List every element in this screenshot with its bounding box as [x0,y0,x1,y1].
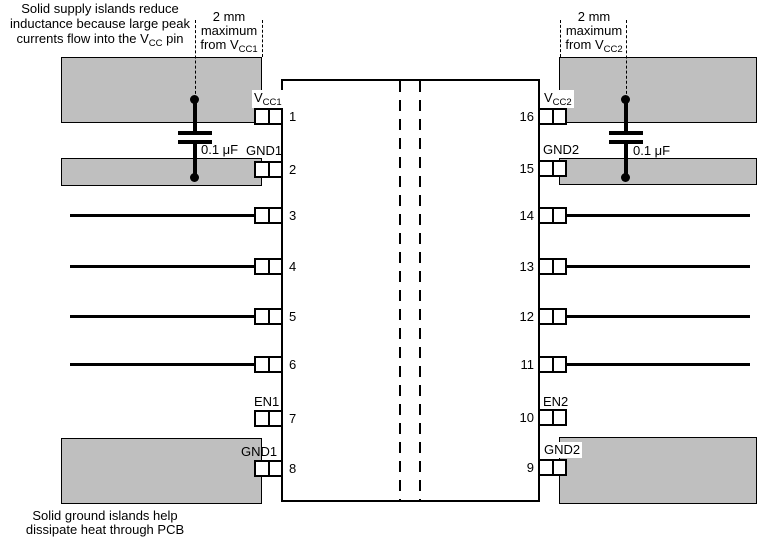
capacitor-value-left: 0.1 μF [201,142,238,157]
pad-divider [552,209,554,222]
supply-note-line2: inductance because large peak [0,16,200,31]
distance-left-line2: maximum [194,24,264,38]
pin-number-6: 6 [289,358,296,371]
pin-number-12: 12 [512,310,534,323]
pin-label-vcc2-main: V [544,90,553,105]
pin-number-1: 1 [289,110,296,123]
pin-pad-11 [538,356,567,373]
pin-pad-14 [538,207,567,224]
supply-island-note: Solid supply islands reduce inductance b… [0,1,200,48]
ground-strip-right [559,158,757,185]
supply-island-right [559,57,757,123]
trace-pin-13 [563,265,750,268]
distance-note-right: 2 mm maximum from VCC2 [559,10,629,54]
pad-divider [552,162,554,175]
pin-label-en2: EN2 [543,394,568,410]
pad-divider [268,260,270,273]
pad-divider [268,358,270,371]
distance-left-line3-sub: CC1 [239,44,258,55]
pin-pad-10 [538,409,567,426]
pin-number-5: 5 [289,310,296,323]
pad-divider [552,110,554,123]
pin-pad-13 [538,258,567,275]
trace-pin-4 [70,265,258,268]
ground-note-line1: Solid ground islands help [10,509,200,523]
pad-divider [268,412,270,425]
pin-pad-16 [538,108,567,125]
pad-divider [552,411,554,424]
ground-island-note: Solid ground islands help dissipate heat… [10,509,200,537]
pin-pad-5 [254,308,283,325]
pin-pad-4 [254,258,283,275]
pad-divider [552,310,554,323]
pin-pad-6 [254,356,283,373]
pin-number-11: 11 [512,358,534,371]
pin-pad-15 [538,160,567,177]
via-dot-bottom-right [621,173,630,182]
pin-label-vcc2-sub: CC2 [553,97,572,108]
isolation-barrier-line-right [419,81,421,501]
trace-pin-6 [70,363,258,366]
ground-strip-left [61,158,262,186]
supply-note-line3-pre: currents flow into the V [17,31,149,46]
pin-number-7: 7 [289,412,296,425]
ground-island-left [61,438,262,504]
supply-island-left [61,57,262,123]
pin-number-14: 14 [512,209,534,222]
pin-number-8: 8 [289,462,296,475]
pin-number-4: 4 [289,260,296,273]
distance-right-line1: 2 mm [559,10,629,24]
via-dot-bottom-left [190,173,199,182]
pin-label-gnd1-top: GND1 [246,143,282,159]
pad-divider [268,163,270,176]
trace-pin-5 [70,315,258,318]
distance-right-line2: maximum [559,24,629,38]
distance-left-line3: from VCC1 [194,38,264,54]
pin-label-gnd2-bottom: GND2 [542,442,582,458]
cap-plate-top-left [178,131,212,135]
pad-divider [268,310,270,323]
pin-number-16: 16 [512,110,534,123]
pin-pad-8 [254,460,283,477]
cap-plate-top-right [609,131,643,135]
pin-number-3: 3 [289,209,296,222]
supply-note-line3: currents flow into the VCC pin [0,31,200,48]
trace-pin-12 [563,315,750,318]
pin-label-vcc1-main: V [254,90,263,105]
ground-island-right [559,437,757,504]
pin-label-en1: EN1 [254,394,279,410]
pin-label-gnd1-bottom: GND1 [241,444,277,460]
pin-label-vcc2: VCC2 [542,90,574,108]
ground-note-line2: dissipate heat through PCB [10,523,200,537]
distance-left-line1: 2 mm [194,10,264,24]
pin-label-vcc1: VCC1 [252,90,284,108]
pin-pad-12 [538,308,567,325]
pin-pad-1 [254,108,283,125]
pad-divider [552,358,554,371]
distance-right-line3-pre: from V [565,37,603,52]
pin-pad-9 [538,459,567,476]
supply-note-line1: Solid supply islands reduce [0,1,200,16]
pad-divider [268,462,270,475]
pin-number-13: 13 [512,260,534,273]
isolation-barrier-line-left [399,81,401,501]
pad-divider [552,260,554,273]
cap-lead-top-left [193,99,197,132]
cap-lead-top-right [624,99,628,132]
supply-note-line3-sub: CC [149,38,163,49]
pin-label-gnd2-top: GND2 [543,142,579,158]
capacitor-value-right: 0.1 μF [633,143,670,158]
trace-pin-11 [563,363,750,366]
trace-pin-14 [563,214,750,217]
pin-pad-2 [254,161,283,178]
pin-number-10: 10 [512,411,534,424]
pad-divider [552,461,554,474]
ic-body [281,79,540,502]
pin-number-2: 2 [289,163,296,176]
pin-label-vcc1-sub: CC1 [263,97,282,108]
trace-pin-3 [70,214,258,217]
pin-pad-3 [254,207,283,224]
pin-pad-7 [254,410,283,427]
pad-divider [268,209,270,222]
pad-divider [268,110,270,123]
distance-right-line3-sub: CC2 [604,44,623,55]
distance-left-line3-pre: from V [200,37,238,52]
diagram-canvas: 0.1 μF 0.1 μF 1 2 3 4 5 6 7 8 16 15 14 1… [0,0,760,539]
pin-number-15: 15 [512,162,534,175]
distance-note-left: 2 mm maximum from VCC1 [194,10,264,54]
supply-note-line3-post: pin [163,31,184,46]
distance-right-line3: from VCC2 [559,38,629,54]
pin-number-9: 9 [512,461,534,474]
